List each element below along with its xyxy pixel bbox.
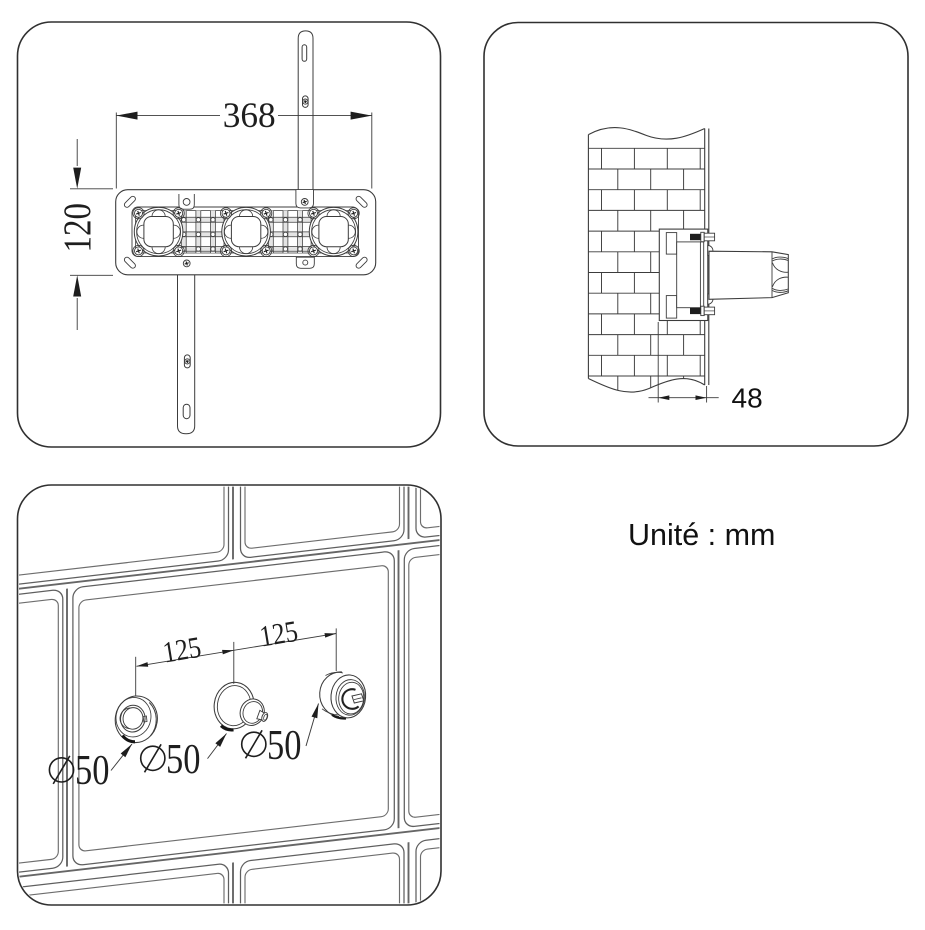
svg-text:48: 48 bbox=[732, 382, 763, 413]
svg-text:120: 120 bbox=[56, 203, 99, 253]
svg-text:50: 50 bbox=[267, 723, 302, 769]
svg-text:125: 125 bbox=[257, 615, 300, 654]
svg-text:50: 50 bbox=[166, 737, 201, 783]
svg-text:125: 125 bbox=[161, 631, 204, 670]
svg-text:Unité : mm: Unité : mm bbox=[628, 518, 775, 552]
svg-text:368: 368 bbox=[223, 95, 276, 135]
svg-text:50: 50 bbox=[75, 748, 110, 794]
